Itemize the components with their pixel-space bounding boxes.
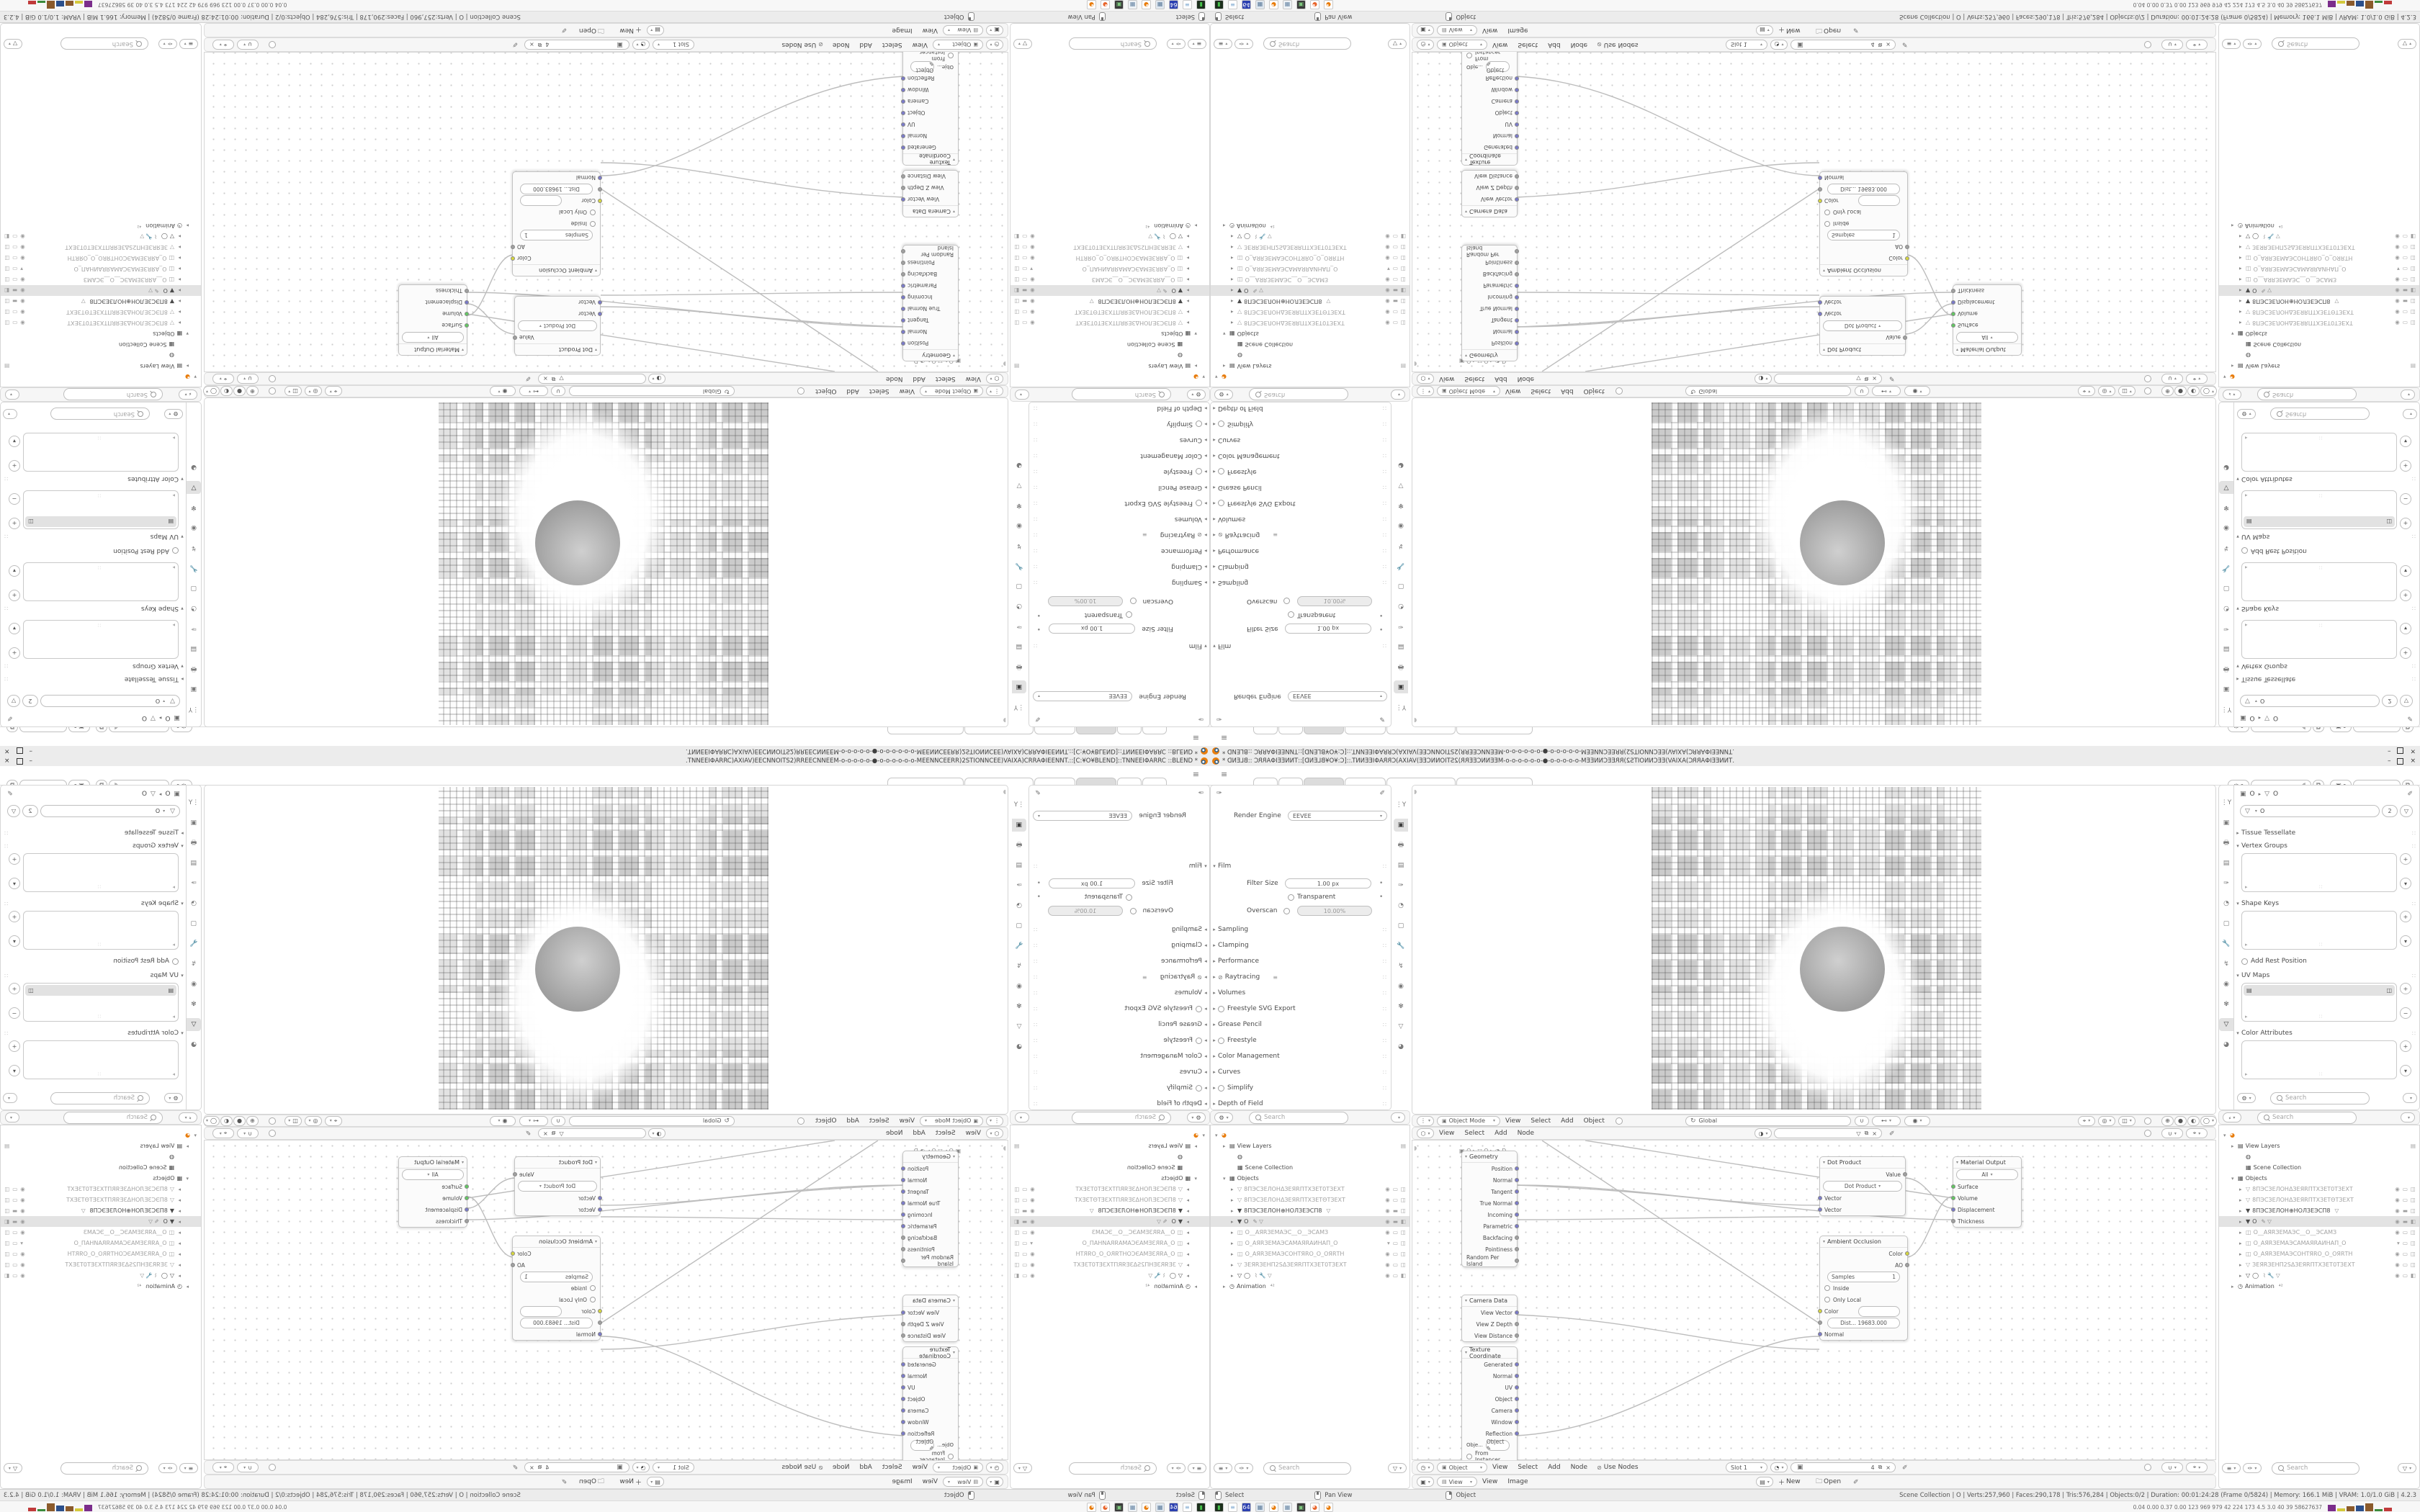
node-geometry[interactable]: ▾GeometryPositionNormalTangentTrue Norma… (902, 1151, 959, 1267)
shading-mode-cluster[interactable]: ⊕ ● ◐ ◯▾ (203, 1116, 259, 1126)
outliner-item-6[interactable]: ▸▽8ПЭСЗЕЛОНΔЗЕЯRПТХЗЕТΘТЗЕХТ◉▭◫ (1211, 307, 1410, 318)
options-dropdown[interactable]: ▾ (3, 1093, 17, 1103)
taskbar-icon-floppy-64[interactable]: 64 (1242, 1, 1251, 10)
prop-row-color-management[interactable]: ▸Color Management∷ (1029, 450, 1209, 462)
properties-tab-icon-12[interactable]: ◕ (1394, 459, 1408, 472)
properties-tab-icon-0[interactable]: ⋮Y (187, 703, 201, 716)
properties-tab-icon-6[interactable]: ▢ (2219, 917, 2233, 930)
visibility-icon[interactable]: ◉ (2395, 244, 2400, 251)
visibility-icon[interactable]: ◫ (2411, 255, 2416, 261)
shading-material-icon[interactable]: ◐ (2187, 1116, 2200, 1126)
outliner-item-13[interactable]: ▸▽◯⌇ 🔧 ▽◉▭◧ (1, 231, 201, 242)
outliner-item-14[interactable]: ▸◷Animation⁴² (1211, 1281, 1410, 1292)
node-ambient-occlusion[interactable]: ▾Ambient OcclusionColorAOSamples1InsideO… (512, 1236, 601, 1341)
prop-row-volumes[interactable]: ▸Volumes∷ (1029, 513, 1209, 525)
outliner-item-9[interactable]: ▸◫O__АЯRЗЕМАЭС__O__ЭСАМЗ◉▭◫ (2219, 274, 2419, 285)
visibility-icon[interactable]: ▭ (12, 1240, 17, 1246)
socket-input[interactable] (1818, 1196, 1822, 1200)
outliner-item-12[interactable]: ▸▽ЗЕЯRЗЕНП2SΔЗЕЯRПТХЗЕТ0ТЗЕХТ◉▭◫ (1010, 1259, 1209, 1270)
list-extra-button[interactable]: ▾ (9, 565, 20, 577)
socket-output[interactable] (1515, 111, 1519, 115)
socket-output[interactable] (1903, 336, 1907, 340)
outliner-item[interactable]: ◍ (1211, 350, 1410, 361)
close-button[interactable]: × (2410, 747, 2416, 755)
properties-tab-icon-11[interactable]: ▽ (2219, 481, 2233, 494)
outliner-item-7[interactable]: ▸▼8ПЭСЗЕЛОН⊕НОЛЗЕЭСП8▽◉▬◫ (1, 1205, 201, 1216)
node-dropdown[interactable]: Dot Product▾ (518, 320, 597, 331)
list-extra-button[interactable]: ▾ (9, 878, 20, 889)
prop-row-depth-of-field[interactable]: ▸Depth of Field∷ (1211, 1098, 1391, 1110)
socket-output[interactable] (901, 1408, 905, 1413)
visibility-icon[interactable]: ◧ (1401, 1272, 1406, 1279)
socket-output[interactable] (1515, 272, 1519, 276)
visibility-icon[interactable]: ▬ (1393, 1218, 1398, 1225)
socket-output[interactable] (511, 245, 515, 249)
prop-row-film[interactable]: ▾Film∷ (1029, 860, 1209, 872)
properties-tab-icon-5[interactable]: ◔ (1012, 899, 1026, 912)
visibility-icon[interactable]: ▭ (1022, 233, 1027, 240)
list-add-button[interactable]: + (9, 518, 20, 529)
properties-tab-icon-6[interactable]: ▢ (2219, 582, 2233, 595)
node-texture-coordinate[interactable]: ▾Texture CoordinateGeneratedNormalUVObje… (1461, 49, 1518, 166)
properties-tab-icon-11[interactable]: ▽ (187, 1018, 201, 1031)
spacer-toggle[interactable] (2144, 1117, 2151, 1125)
visibility-icon[interactable]: ◉ (1385, 1261, 1390, 1268)
pin-icon[interactable]: ✐ (7, 714, 13, 721)
data-name-field[interactable]: ▽▾O (40, 805, 180, 817)
visibility-icon[interactable]: ◉ (1385, 244, 1390, 251)
visibility-icon[interactable]: ◫ (4, 244, 9, 251)
visibility-icon[interactable]: ◉ (20, 1197, 25, 1203)
overlays-icon[interactable]: ⌖▾ (212, 374, 234, 384)
taskbar-icon-floppy-64[interactable]: 64 (1169, 1, 1178, 10)
socket-input[interactable] (598, 176, 602, 180)
fake-user-shield-icon[interactable]: ▽ (2400, 695, 2413, 707)
shader-type-dropdown[interactable]: ▣Object▾ (1437, 40, 1487, 50)
users-count-badge[interactable]: 2 (22, 695, 38, 707)
panel-header-color-attributes[interactable]: ▾Color Attributes∷ (0, 473, 186, 485)
visibility-icon[interactable]: ◉ (1385, 1251, 1390, 1257)
menu-view[interactable]: View (1505, 1117, 1520, 1125)
pin-icon[interactable]: ✐ (512, 40, 518, 48)
properties-tab-icon-9[interactable]: ◉ (1394, 519, 1408, 532)
list-extra-button[interactable]: ▾ (2400, 878, 2411, 889)
outliner-item-8[interactable]: ▸▼O✎ ▽◉▬◧ (1211, 1216, 1410, 1227)
taskbar-icon-notepad[interactable]: ≡ (1183, 1503, 1192, 1512)
panel-header-tissue-tessellate[interactable]: ▸Tissue Tessellate∷ (2234, 673, 2420, 685)
socket-output[interactable] (901, 1362, 905, 1367)
visibility-icon[interactable]: ▭ (1393, 1197, 1398, 1203)
prop-row-freestyle-svg-export[interactable]: ▸Freestyle SVG Export∷ (1211, 498, 1391, 509)
node-camera-data[interactable]: ▾Camera DataView VectorView Z DepthView … (1461, 1295, 1518, 1342)
outliner-item-5[interactable]: ▸▽8ПЭСЗЕЛОНΔЗЕЯRПТХЗЕТ0ТЗЕХТ◉▭◫ (1010, 1184, 1209, 1194)
node-camera-data[interactable]: ▾Camera DataView VectorView Z DepthView … (902, 170, 959, 217)
visibility-icon[interactable]: ◉ (1030, 233, 1035, 240)
editor-type-icon[interactable]: ▣▾ (986, 25, 1003, 35)
search-input[interactable]: Search (1263, 38, 1351, 50)
visibility-icon[interactable]: ◫ (4, 1229, 9, 1236)
outliner-item[interactable]: ▾◕ (1010, 372, 1209, 382)
new-image-button[interactable]: ＋New (1778, 1477, 1801, 1487)
visibility-icon[interactable]: ◫ (4, 1240, 9, 1246)
socket-output[interactable] (901, 1178, 905, 1182)
visibility-icon[interactable]: ▭ (2403, 244, 2408, 251)
close-button[interactable]: × (4, 747, 10, 755)
outliner-item-5[interactable]: ▸▽8ПЭСЗЕЛОНΔЗЕЯRПТХЗЕТ0ТЗЕХТ◉▭◫ (1211, 318, 1410, 328)
outliner-item-6[interactable]: ▸▽8ПЭСЗЕЛОНΔЗЕЯRПТХЗЕТΘТЗЕХТ◉▭◫ (1010, 1194, 1209, 1205)
visibility-icon[interactable]: ◧ (1401, 1218, 1406, 1225)
visibility-icon[interactable]: ▭ (1393, 320, 1398, 326)
blender-file-icon[interactable]: ✑▾ (2243, 39, 2262, 49)
outliner-item[interactable]: ▾◕ (2219, 1130, 2419, 1140)
visibility-icon[interactable]: ▭ (2403, 309, 2408, 315)
visibility-icon[interactable]: ▬ (1393, 287, 1398, 294)
spacer-toggle[interactable] (2144, 375, 2151, 382)
properties-tab-icon-11[interactable]: ▽ (187, 481, 201, 494)
socket-output[interactable] (901, 1247, 905, 1251)
properties-tab-icon-11[interactable]: ▽ (1012, 1020, 1026, 1033)
socket-input[interactable] (465, 300, 469, 305)
menu-node[interactable]: Node (1518, 375, 1535, 382)
list-add-button[interactable]: + (2400, 911, 2411, 922)
visibility-icon[interactable]: ◫ (4, 255, 9, 261)
socket-input[interactable] (1818, 312, 1822, 316)
outliner-item-10[interactable]: ▸◫O_АЯRЗЕМАЭСАМАЯRАИНАП_O▾▭◫ (1211, 264, 1410, 274)
outliner-item-3[interactable]: ▦Scene Collection (1010, 1162, 1209, 1173)
search-input[interactable]: Search (1069, 38, 1157, 50)
spacer-toggle[interactable] (269, 41, 276, 48)
outliner-item-6[interactable]: ▸▽8ПЭСЗЕЛОНΔЗЕЯRПТХЗЕТΘТЗЕХТ◉▭◫ (2219, 307, 2419, 318)
slot-dropdown[interactable]: Slot 1▾ (653, 40, 694, 50)
xray-icon[interactable]: ◫▾ (2118, 1116, 2136, 1126)
visibility-icon[interactable]: ▭ (12, 255, 17, 261)
display-mode-icon[interactable]: ≡▾ (2222, 1463, 2241, 1473)
outliner-item[interactable]: ◍ (2219, 350, 2419, 361)
outliner-item-3[interactable]: ▦Scene Collection (2219, 339, 2419, 350)
properties-tab-icon-4[interactable]: ✑ (1012, 879, 1026, 892)
socket-output[interactable] (901, 1201, 905, 1205)
slot-dropdown[interactable]: Slot 1▾ (653, 1462, 694, 1472)
list-extra-button[interactable]: ▾ (9, 935, 20, 947)
outliner-item-13[interactable]: ▸▽◯⌇ 🔧 ▽◉▭◧ (1010, 1270, 1209, 1281)
display-mode-icon[interactable]: ≡▾ (179, 39, 198, 49)
menu-view[interactable]: View (1482, 27, 1497, 34)
panel-header-tissue-tessellate[interactable]: ▸Tissue Tessellate∷ (0, 673, 186, 685)
visibility-icon[interactable]: ▭ (1393, 1229, 1398, 1236)
search-input[interactable]: Search (2272, 38, 2359, 50)
visibility-icon[interactable]: ◉ (1385, 1207, 1390, 1214)
visibility-icon[interactable]: ◫ (2411, 1197, 2416, 1203)
prop-row-clamping[interactable]: ▸Clamping∷ (1211, 561, 1391, 572)
visibility-icon[interactable]: ◉ (1385, 309, 1390, 315)
outliner-item-13[interactable]: ▸▽◯⌇ 🔧 ▽◉▭◧ (1211, 1270, 1410, 1281)
visibility-icon[interactable]: ◉ (1385, 1186, 1390, 1192)
outliner-item-8[interactable]: ▸▼O✎ ▽◉▬◧ (2219, 1216, 2419, 1227)
visibility-icon[interactable]: ▬ (1022, 1207, 1027, 1214)
outliner-item-7[interactable]: ▸▼8ПЭСЗЕЛОН⊕НОЛЗЕЭСП8▽◉▬◫ (2219, 1205, 2419, 1216)
outliner-item-14[interactable]: ▸◷Animation⁴² (1211, 220, 1410, 231)
outliner-item-7[interactable]: ▸▼8ПЭСЗЕЛОН⊕НОЛЗЕЭСП8▽◉▬◫ (1, 296, 201, 307)
outliner-item-5[interactable]: ▸▽8ПЭСЗЕЛОНΔЗЕЯRПТХЗЕТ0ТЗЕХТ◉▭◫ (1, 1184, 201, 1194)
visibility-icon[interactable]: ▭ (2403, 320, 2408, 326)
panel-header-shape-keys[interactable]: ▾Shape Keys∷ (2234, 603, 2420, 614)
prop-row-sampling[interactable]: ▸Sampling∷ (1211, 577, 1391, 588)
socket-output[interactable] (901, 186, 905, 190)
outliner-item-7[interactable]: ▸▼8ПЭСЗЕЛОН⊕НОЛЗЕЭСП8▽◉▬◫ (1010, 1205, 1209, 1216)
visibility-icon[interactable]: ▤ (1401, 1143, 1406, 1149)
socket-output[interactable] (1515, 1224, 1519, 1228)
visibility-icon[interactable]: ◉ (2395, 287, 2400, 294)
pin-icon[interactable]: ✐ (7, 791, 13, 798)
socket-output[interactable] (1515, 197, 1519, 202)
datablock-list[interactable]: ▤◫▸∷ (23, 983, 179, 1022)
shading-rendered-icon[interactable]: ◯▾ (2200, 1116, 2217, 1126)
visibility-icon[interactable]: ▭ (1022, 1229, 1027, 1236)
visibility-icon[interactable]: ◫ (1401, 1207, 1406, 1214)
list-extra-button[interactable]: ▾ (9, 1065, 20, 1076)
visibility-icon[interactable]: ◫ (2411, 309, 2416, 315)
prop-row-freestyle[interactable]: ▸Freestyle∷ (1211, 1035, 1391, 1046)
filter-icon[interactable]: ⚙▾ (2237, 409, 2256, 419)
properties-tab-icon-7[interactable]: 🔧 (1394, 559, 1408, 572)
taskbar-icon-calculator[interactable]: ▦ (1155, 1503, 1165, 1512)
minimize-button[interactable]: – (2388, 747, 2391, 755)
snap-icon[interactable]: ∪▾ (237, 1128, 259, 1138)
taskbar-icon-display-capture[interactable]: ▣ (1296, 1, 1306, 10)
properties-tab-icon-2[interactable]: 🖶 (1012, 660, 1026, 673)
datablock-list[interactable]: ▸∷ (23, 433, 179, 472)
shading-solid-icon[interactable]: ● (233, 1116, 246, 1126)
visibility-icon[interactable]: ◉ (1385, 255, 1390, 261)
socket-output[interactable] (901, 330, 905, 334)
visibility-icon[interactable]: ◫ (4, 320, 9, 326)
socket-output[interactable] (1515, 122, 1519, 127)
visibility-icon[interactable]: ◉ (1385, 320, 1390, 326)
panel-header-add-rest-position[interactable]: Add Rest Position (2234, 545, 2420, 557)
users-count-badge[interactable]: 2 (2382, 805, 2398, 817)
area-corner-handle[interactable]: ◗ (1414, 361, 1417, 367)
node-geometry[interactable]: ▾GeometryPositionNormalTangentTrue Norma… (1461, 1151, 1518, 1267)
node-dropdown[interactable]: All▾ (1956, 332, 2018, 343)
taskbar-icon-display-capture[interactable]: ▣ (1296, 1503, 1306, 1512)
visibility-icon[interactable]: ▭ (2403, 1197, 2408, 1203)
list-extra-button[interactable]: ▾ (2400, 623, 2411, 634)
socket-output[interactable] (901, 134, 905, 138)
prop-row-filter-size[interactable]: Filter Size1.00 px• (1029, 878, 1209, 889)
list-item-active[interactable]: ▤◫ (2244, 985, 2395, 996)
search-input[interactable]: Search (63, 389, 163, 401)
socket-output[interactable] (1905, 1263, 1909, 1267)
material-name-field[interactable]: ▽⧉× (1774, 1128, 1882, 1138)
shading-material-icon[interactable]: ◐ (220, 387, 233, 397)
visibility-icon[interactable]: ◫ (4, 1261, 9, 1268)
editor-type-icon[interactable]: ⬡▾ (986, 374, 1003, 384)
datablock-list[interactable]: ▸∷ (2241, 620, 2397, 659)
visibility-icon[interactable]: ◫ (1014, 1251, 1019, 1257)
prop-row-overscan[interactable]: Overscan10.00% (1029, 595, 1209, 607)
area-corner-handle[interactable]: ◗ (1414, 788, 1417, 795)
prop-row-grease-pencil[interactable]: ▸Grease Pencil∷ (1211, 1019, 1391, 1030)
properties-tab-icon-4[interactable]: ✑ (1394, 620, 1408, 633)
node-material-output[interactable]: ▾Material OutputAll▾SurfaceVolumeDisplac… (398, 284, 467, 356)
visibility-icon[interactable]: ▬ (1393, 298, 1398, 305)
image-icon[interactable]: ◔▾ (1770, 40, 1788, 50)
search-input[interactable]: Search (1072, 1112, 1171, 1124)
shader-node-canvas[interactable]: ▣ O ▸ ▽ O ▸ ◑ D ◗ ▾GeometryPositionNorma… (1412, 52, 2216, 372)
properties-tab-icon-5[interactable]: ◔ (2219, 602, 2233, 615)
outliner-item-1[interactable]: ▸▤View Layers▤ (1211, 1140, 1410, 1151)
properties-tab-icon-0[interactable]: ⋮Y (1394, 798, 1408, 811)
visibility-icon[interactable]: ▤ (1401, 363, 1406, 369)
datablock-list[interactable]: ▸∷ (2241, 562, 2397, 601)
menu-node[interactable]: Node (1571, 1464, 1588, 1471)
visibility-icon[interactable]: ◫ (1401, 266, 1406, 272)
outliner-item-4[interactable]: ▾▦Objects (2219, 1173, 2419, 1184)
visibility-icon[interactable]: ◫ (1014, 1261, 1019, 1268)
clock-icon[interactable]: ◷▾ (986, 1462, 1003, 1472)
visibility-icon[interactable]: ◫ (1401, 255, 1406, 261)
pin-icon[interactable]: ✐ (512, 1464, 518, 1472)
list-extra-button[interactable]: − (9, 493, 20, 505)
menu-add[interactable]: Add (859, 41, 871, 48)
socket-output[interactable] (1905, 1251, 1909, 1256)
visibility-icon[interactable]: ◉ (1030, 276, 1035, 283)
menu-select[interactable]: Select (1531, 388, 1551, 395)
visibility-icon[interactable]: ▤ (2411, 1143, 2416, 1149)
properties-tab-icon-6[interactable]: ▢ (1394, 580, 1408, 593)
visibility-icon[interactable]: ◫ (2411, 1240, 2416, 1246)
properties-tab-icon-0[interactable]: ⋮Y (187, 796, 201, 809)
outliner-item-7[interactable]: ▸▼8ПЭСЗЕЛОН⊕НОЛЗЕЭСП8▽◉▬◫ (1211, 1205, 1410, 1216)
node-texture-coordinate[interactable]: ▾Texture CoordinateGeneratedNormalUVObje… (1461, 1346, 1518, 1463)
outliner-item[interactable]: ▾◕ (2219, 372, 2419, 382)
pin-icon[interactable]: ✐ (1889, 1130, 1895, 1138)
maximize-button[interactable] (2397, 758, 2403, 765)
prop-row-simplify[interactable]: ▸Simplify∷ (1211, 418, 1391, 430)
properties-tab-icon-7[interactable]: 🔧 (187, 562, 201, 575)
properties-tab-icon-12[interactable]: ◕ (2219, 461, 2233, 474)
outliner-item-1[interactable]: ▸▤View Layers▤ (2219, 361, 2419, 372)
visibility-icon[interactable]: ◧ (2411, 1272, 2416, 1279)
socket-output[interactable] (901, 1224, 905, 1228)
visibility-icon[interactable]: ▾ (2397, 1240, 2400, 1246)
socket-input[interactable] (1818, 1320, 1822, 1325)
socket-output[interactable] (1515, 1166, 1519, 1171)
menu-image[interactable]: Image (1507, 1478, 1528, 1485)
search-input[interactable]: Search (2257, 389, 2357, 401)
overlays-icon[interactable]: ⌖▾ (2186, 1128, 2208, 1138)
material-name-field[interactable]: ▽⧉× (538, 1128, 646, 1138)
search-input[interactable]: Search (50, 1092, 150, 1104)
clock-icon[interactable]: ◷▾ (1417, 1462, 1434, 1472)
visibility-icon[interactable]: ▬ (12, 1218, 17, 1225)
visibility-icon[interactable]: ▤ (2411, 363, 2416, 369)
properties-tab-icon-12[interactable]: ◕ (187, 461, 201, 474)
visibility-icon[interactable]: ◉ (1030, 255, 1035, 261)
outliner-item-11[interactable]: ▸◫O_АЯRЗЕМАЭСОНТЯRО_O_ОЯRТН◉▭◫ (1, 1248, 201, 1259)
outliner-item-5[interactable]: ▸▽8ПЭСЗЕЛОНΔЗЕЯRПТХЗЕТ0ТЗЕХТ◉▭◫ (2219, 1184, 2419, 1194)
prop-row-depth-of-field[interactable]: ▸Depth of Field∷ (1211, 402, 1391, 414)
filter-icon[interactable]: ⚙▾ (164, 409, 183, 419)
menu-icon[interactable]: ≡ (1221, 770, 1227, 779)
outliner-item-12[interactable]: ▸▽ЗЕЯRЗЕНП2SΔЗЕЯRПТХЗЕТ0ТЗЕХТ◉▭◫ (1010, 242, 1209, 253)
socket-output[interactable] (1515, 1333, 1519, 1338)
socket-input[interactable] (1818, 199, 1822, 203)
outliner-item-4[interactable]: ▾▦Objects (1010, 1173, 1209, 1184)
prop-row-filter-size[interactable]: Filter Size1.00 px• (1211, 878, 1391, 889)
mode-dropdown[interactable]: ▣Object Mode▾ (920, 387, 983, 397)
visibility-icon[interactable]: ◉ (1385, 276, 1390, 283)
spacer-toggle[interactable] (2144, 1464, 2151, 1471)
minimize-button[interactable]: – (30, 747, 33, 755)
material-id-field[interactable]: ▣ 4 ⧉ × (524, 40, 629, 50)
list-add-button[interactable]: + (9, 460, 20, 472)
visibility-icon[interactable]: ▭ (1393, 309, 1398, 315)
mode-extra-toggle[interactable] (1615, 388, 1623, 395)
visibility-icon[interactable]: ▭ (1022, 1240, 1027, 1246)
properties-tab-icon-6[interactable]: ▢ (1012, 580, 1026, 593)
properties-tab-icon-10[interactable]: ✾ (1394, 499, 1408, 512)
socket-output[interactable] (1515, 134, 1519, 138)
visibility-icon[interactable]: ◫ (2411, 1207, 2416, 1214)
socket-output[interactable] (901, 111, 905, 115)
outliner-item-4[interactable]: ▾▦Objects (1, 1173, 201, 1184)
gizmo-icon[interactable]: ⌖▾ (212, 40, 234, 50)
pin-icon[interactable]: ✐ (525, 374, 531, 382)
prop-row-curves[interactable]: ▸Curves∷ (1211, 434, 1391, 446)
menu-select[interactable]: Select (869, 1117, 889, 1125)
outliner-item-3[interactable]: ▦Scene Collection (1, 1162, 201, 1173)
shader-node-canvas[interactable]: ▣ O ▸ ▽ O ▸ ◑ D ◗ ▾GeometryPositionNorma… (1412, 1140, 2216, 1460)
socket-output[interactable] (511, 256, 515, 261)
clock-icon[interactable]: ◷▾ (1417, 40, 1434, 50)
list-extra-button[interactable]: ▾ (9, 623, 20, 634)
visibility-icon[interactable]: ◧ (1014, 233, 1019, 240)
outliner-item-11[interactable]: ▸◫O_АЯRЗЕМАЭСОНТЯRО_O_ОЯRТН◉▭◫ (1, 253, 201, 264)
properties-tab-icon-12[interactable]: ◕ (1394, 1040, 1408, 1053)
outliner-item-11[interactable]: ▸◫O_АЯRЗЕМАЭСОНТЯRО_O_ОЯRТН◉▭◫ (1010, 253, 1209, 264)
visibility-icon[interactable]: ◫ (1401, 1197, 1406, 1203)
outliner-item-12[interactable]: ▸▽ЗЕЯRЗЕНП2SΔЗЕЯRПТХЗЕТ0ТЗЕХТ◉▭◫ (1, 242, 201, 253)
visibility-icon[interactable]: ▭ (12, 1197, 17, 1203)
menu-image[interactable]: Image (892, 27, 912, 34)
socket-output[interactable] (901, 1374, 905, 1378)
filter-dropdown[interactable]: ▾ (2401, 1112, 2415, 1122)
display-mode-icon[interactable]: ≡▾ (2222, 39, 2241, 49)
node-camera-data[interactable]: ▾Camera DataView VectorView Z DepthView … (902, 1295, 959, 1342)
blender-file-icon[interactable]: ✑▾ (1167, 1463, 1186, 1473)
properties-tab-icon-10[interactable]: ✾ (187, 998, 201, 1011)
outliner-item-14[interactable]: ▸◷Animation⁴² (2219, 1281, 2419, 1292)
panel-header-add-rest-position[interactable]: Add Rest Position (0, 545, 186, 557)
socket-output[interactable] (901, 1431, 905, 1436)
transform-orientation-dropdown[interactable]: ↻Global (569, 387, 735, 397)
proportional-edit-icon[interactable]: ◉▾ (1904, 387, 1930, 397)
properties-tab-icon-8[interactable]: ↯ (2219, 958, 2233, 971)
outliner-item-10[interactable]: ▸◫O_АЯRЗЕМАЭСАМАЯRАИНАП_O▾▭◫ (1, 1238, 201, 1248)
search-input[interactable]: Search (1263, 1462, 1351, 1475)
panel-header-shape-keys[interactable]: ▾Shape Keys∷ (0, 603, 186, 614)
clock-icon[interactable]: ◷▾ (986, 40, 1003, 50)
visibility-icon[interactable]: ▭ (12, 309, 17, 315)
pin-icon[interactable]: ✐ (1853, 1479, 1859, 1486)
properties-tab-icon-1[interactable]: ▣ (2219, 816, 2233, 829)
menu-object[interactable]: Object (815, 388, 836, 395)
list-extra-button[interactable]: − (9, 1007, 20, 1019)
filter-type-icon[interactable]: ⚙▾ (1187, 390, 1206, 400)
visibility-icon[interactable]: ▬ (2403, 1207, 2408, 1214)
menu-add[interactable]: Add (846, 1117, 859, 1125)
